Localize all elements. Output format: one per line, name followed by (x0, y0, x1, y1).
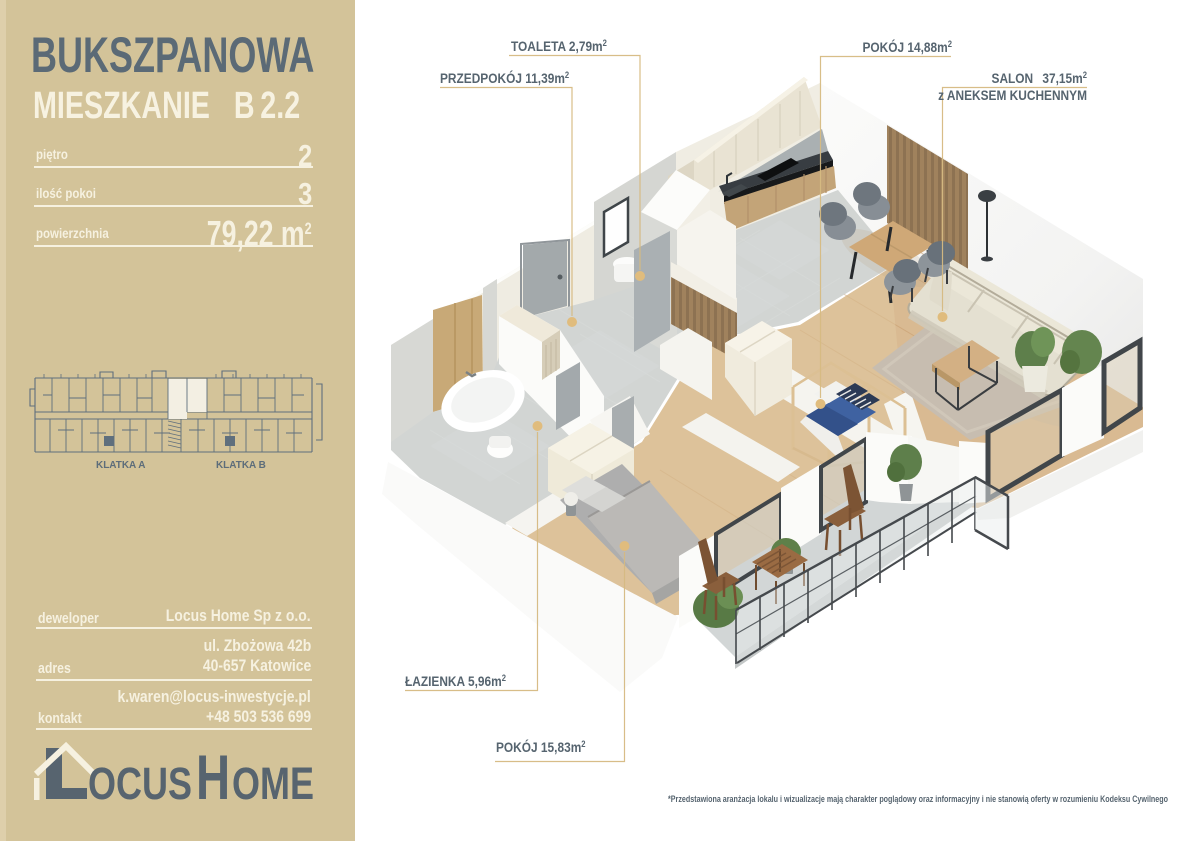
svg-text:z ANEKSEM KUCHENNYM: z ANEKSEM KUCHENNYM (938, 87, 1087, 103)
svg-text:ŁAZIENKA 5,96m2: ŁAZIENKA 5,96m2 (405, 672, 506, 689)
svg-text:SALON 37,15m2: SALON 37,15m2 (992, 69, 1088, 86)
svg-text:*Przedstawiona aranżacja lokal: *Przedstawiona aranżacja lokalu i wizual… (668, 794, 1168, 804)
svg-text:PRZEDPOKÓJ 11,39m2: PRZEDPOKÓJ 11,39m2 (440, 69, 570, 86)
svg-text:TOALETA 2,79m2: TOALETA 2,79m2 (511, 37, 607, 54)
svg-text:POKÓJ 15,83m2: POKÓJ 15,83m2 (496, 738, 586, 755)
svg-text:POKÓJ 14,88m2: POKÓJ 14,88m2 (862, 38, 952, 55)
